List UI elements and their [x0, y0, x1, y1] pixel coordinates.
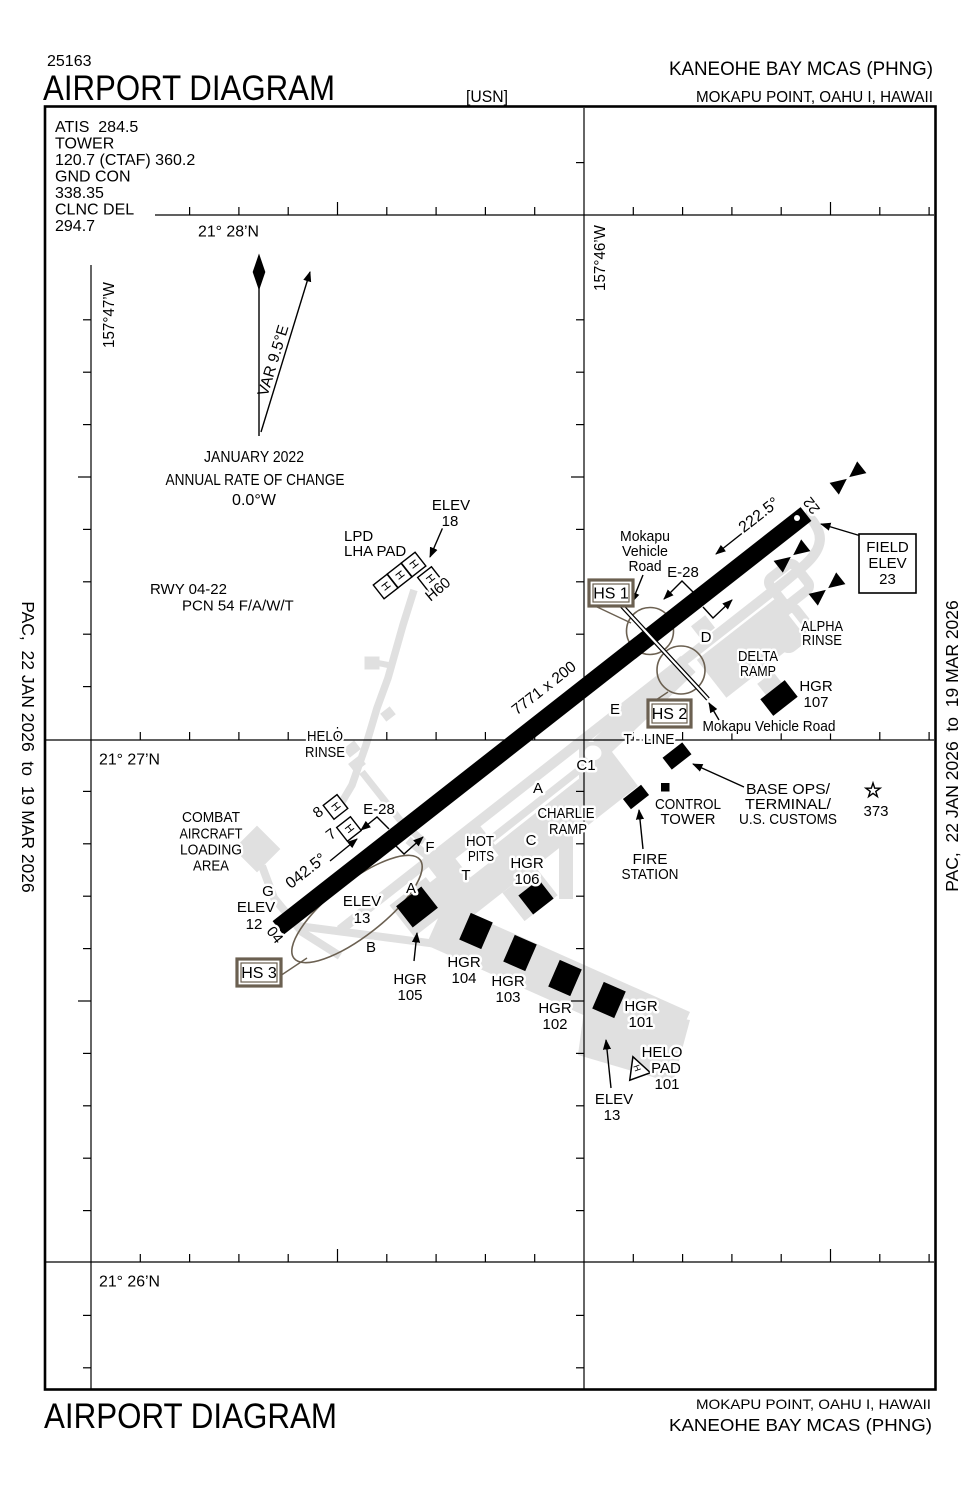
svg-text:LHA PAD: LHA PAD: [344, 543, 406, 560]
svg-text:102: 102: [542, 1016, 567, 1033]
svg-text:PITS: PITS: [468, 848, 494, 865]
svg-text:106: 106: [514, 871, 539, 888]
svg-text:C: C: [526, 832, 537, 849]
svg-text:Road: Road: [629, 558, 662, 575]
svg-text:KANEOHE BAY MCAS (PHNG): KANEOHE BAY MCAS (PHNG): [669, 58, 933, 80]
svg-text:T - LINE: T - LINE: [624, 731, 675, 748]
svg-text:RWY 04-22: RWY 04-22: [150, 581, 227, 598]
svg-text:AIRCRAFT: AIRCRAFT: [180, 826, 243, 843]
svg-text:[USN]: [USN]: [466, 88, 508, 106]
svg-text:MOKAPU POINT, OAHU I, HAWAII: MOKAPU POINT, OAHU I, HAWAII: [696, 1396, 931, 1412]
svg-text:HGR: HGR: [510, 855, 544, 872]
svg-text:TOWER: TOWER: [55, 136, 114, 153]
svg-text:101: 101: [628, 1014, 653, 1031]
svg-text:RINSE: RINSE: [305, 744, 345, 761]
svg-text:Mokapu Vehicle Road: Mokapu Vehicle Road: [703, 718, 836, 735]
svg-text:HELO: HELO: [642, 1044, 683, 1061]
svg-text:KANEOHE BAY MCAS (PHNG): KANEOHE BAY MCAS (PHNG): [669, 1415, 932, 1435]
svg-text:U.S. CUSTOMS: U.S. CUSTOMS: [739, 811, 837, 828]
svg-text:AIRPORT DIAGRAM: AIRPORT DIAGRAM: [44, 1397, 337, 1436]
svg-text:B: B: [366, 939, 376, 956]
svg-text:A: A: [406, 880, 416, 897]
svg-text:PAD: PAD: [651, 1060, 681, 1077]
svg-text:D: D: [701, 629, 712, 646]
svg-text:0.0°W: 0.0°W: [232, 492, 277, 509]
svg-text:23: 23: [879, 571, 896, 588]
svg-text:ANNUAL RATE OF CHANGE: ANNUAL RATE OF CHANGE: [166, 472, 345, 489]
svg-text:120.7 (CTAF) 360.2: 120.7 (CTAF) 360.2: [55, 152, 195, 169]
svg-text:ELEV: ELEV: [868, 555, 906, 572]
svg-text:ELEV: ELEV: [237, 899, 275, 916]
svg-text:13: 13: [604, 1107, 621, 1124]
svg-text:21° 26’N: 21° 26’N: [99, 1274, 160, 1291]
svg-text:FIELD: FIELD: [866, 539, 909, 556]
svg-text:338.35: 338.35: [55, 185, 104, 202]
svg-text:TOWER: TOWER: [661, 811, 716, 828]
svg-text:21° 27’N: 21° 27’N: [99, 752, 160, 769]
svg-text:18: 18: [442, 513, 459, 530]
svg-text:294.7: 294.7: [55, 218, 95, 235]
svg-text:RINSE: RINSE: [802, 632, 842, 649]
svg-text:A: A: [533, 780, 543, 797]
svg-text:MOKAPU POINT, OAHU I, HAWAII: MOKAPU POINT, OAHU I, HAWAII: [696, 89, 933, 106]
svg-text:E-28: E-28: [363, 801, 395, 818]
svg-text:COMBAT: COMBAT: [182, 809, 240, 826]
svg-text:HGR: HGR: [799, 678, 833, 695]
svg-text:157°47’W: 157°47’W: [101, 281, 118, 348]
svg-text:HS 1: HS 1: [593, 586, 629, 603]
svg-text:PCN 54 F/A/W/T: PCN 54 F/A/W/T: [182, 598, 294, 615]
svg-text:HS 2: HS 2: [652, 706, 688, 723]
svg-text:101: 101: [654, 1076, 679, 1093]
svg-text:ELEV: ELEV: [432, 497, 470, 514]
svg-text:13: 13: [354, 910, 371, 927]
svg-text:RAMP: RAMP: [740, 663, 776, 680]
svg-text:373: 373: [863, 803, 888, 820]
svg-text:LOADING: LOADING: [180, 842, 242, 859]
svg-text:ELEV: ELEV: [343, 893, 381, 910]
svg-text:GND CON: GND CON: [55, 169, 131, 186]
svg-text:103: 103: [495, 989, 520, 1006]
svg-text:157°46’W: 157°46’W: [592, 224, 609, 291]
svg-text:HGR: HGR: [393, 971, 427, 988]
svg-text:104: 104: [451, 970, 476, 987]
svg-text:AREA: AREA: [193, 858, 229, 875]
svg-text:G: G: [262, 883, 274, 900]
svg-text:HGR: HGR: [447, 954, 481, 971]
svg-text:E-28: E-28: [667, 564, 699, 581]
svg-text:CHARLIE: CHARLIE: [538, 805, 595, 822]
svg-text:ELEV: ELEV: [595, 1091, 633, 1108]
svg-text:PAC, 22 JAN 2026 to 19 MAR: PAC, 22 JAN 2026 to 19 MAR 2026: [18, 601, 38, 893]
svg-text:JANUARY 2022: JANUARY 2022: [204, 449, 304, 466]
svg-text:25163: 25163: [47, 53, 92, 70]
svg-text:PAC, 22 JAN 2026 to 19 MAR: PAC, 22 JAN 2026 to 19 MAR 2026: [942, 600, 962, 892]
svg-text:HGR: HGR: [624, 998, 658, 1015]
svg-text:HS 3: HS 3: [241, 965, 277, 982]
svg-text:CLNC DEL: CLNC DEL: [55, 202, 134, 219]
svg-text:HGR: HGR: [491, 973, 525, 990]
svg-text:T: T: [461, 867, 470, 884]
svg-text:ATIS 284.5: ATIS 284.5: [55, 119, 138, 136]
svg-text:RAMP: RAMP: [549, 821, 587, 838]
svg-text:C1: C1: [576, 757, 595, 774]
svg-text:107: 107: [803, 694, 828, 711]
svg-text:F: F: [425, 839, 434, 856]
svg-text:STATION: STATION: [622, 866, 679, 883]
svg-text:12: 12: [246, 916, 263, 933]
svg-text:21° 28’N: 21° 28’N: [198, 224, 259, 241]
svg-text:AIRPORT DIAGRAM: AIRPORT DIAGRAM: [43, 69, 335, 108]
svg-text:HGR: HGR: [538, 1000, 572, 1017]
svg-text:HELO: HELO: [307, 728, 343, 745]
svg-text:105: 105: [397, 987, 422, 1004]
svg-text:E: E: [610, 701, 620, 718]
